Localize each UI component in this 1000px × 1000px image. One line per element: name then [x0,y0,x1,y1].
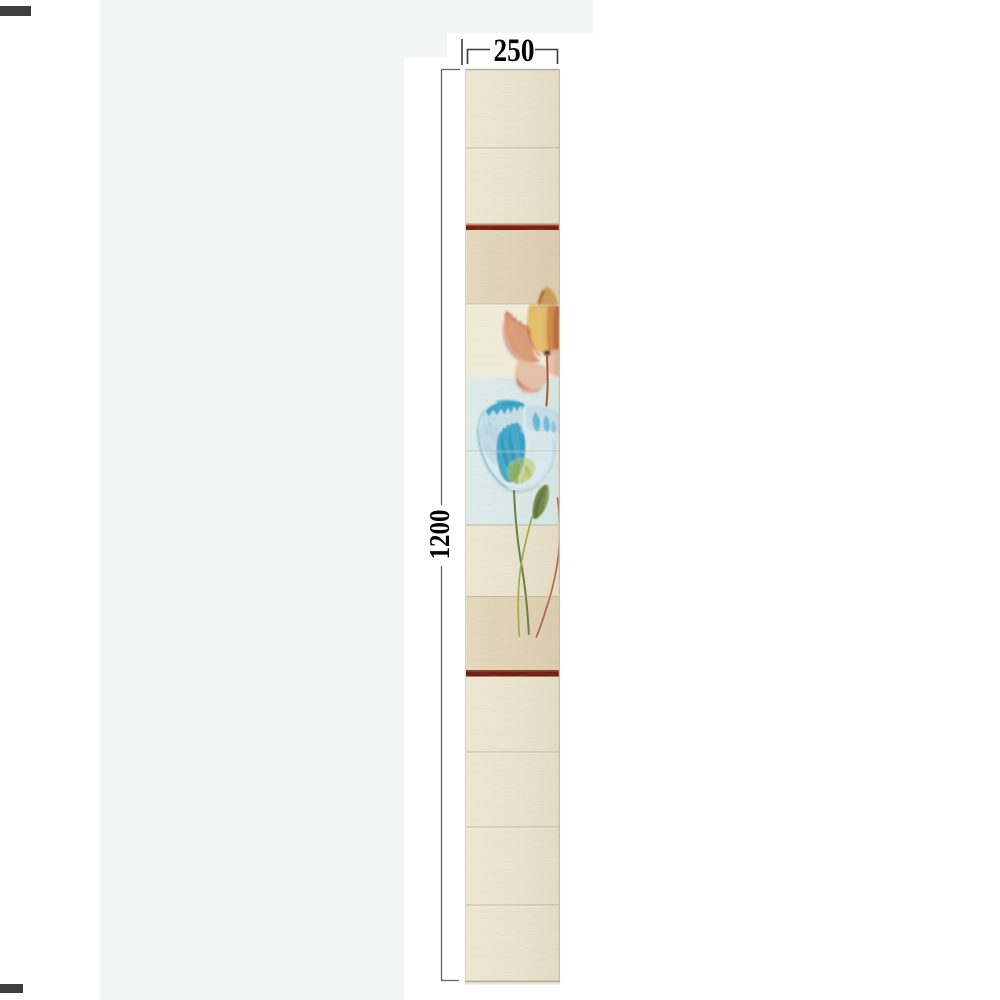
svg-text:1200: 1200 [424,510,456,560]
svg-text:250: 250 [494,33,535,69]
